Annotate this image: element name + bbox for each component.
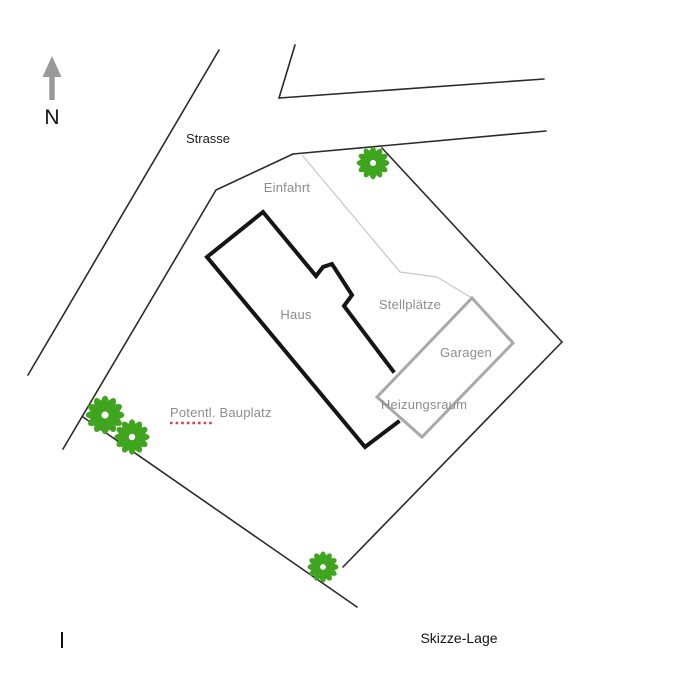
- tree-icon-south: [308, 552, 339, 583]
- street-line-left: [28, 50, 219, 375]
- north-arrow-icon: [43, 56, 62, 100]
- street-label: Strasse: [186, 131, 230, 146]
- potential-building-site-label: Potentl. Bauplatz: [170, 405, 272, 420]
- garage-building-outline: [377, 298, 513, 437]
- sketch-title: Skizze-Lage: [420, 630, 497, 646]
- north-arrow-shaft: [49, 74, 54, 100]
- parcel-boundary-northeast: [382, 148, 562, 342]
- site-plan-sketch: N Strasse Einfahrt Haus Stellplätze Gara…: [0, 0, 696, 692]
- parking-label: Stellplätze: [379, 297, 441, 312]
- house-label: Haus: [280, 307, 311, 322]
- north-arrow-head: [43, 56, 62, 77]
- boundary-lines: [28, 45, 562, 607]
- street-line-upper: [279, 45, 544, 98]
- street-edge-south: [293, 131, 546, 154]
- garage-label: Garagen: [440, 345, 492, 360]
- heating-room-label: Heizungsraum: [381, 397, 467, 412]
- north-letter: N: [44, 106, 59, 129]
- driveway-line: [302, 155, 472, 298]
- parcel-boundary-southeast: [343, 342, 562, 567]
- driveway-label: Einfahrt: [264, 180, 311, 195]
